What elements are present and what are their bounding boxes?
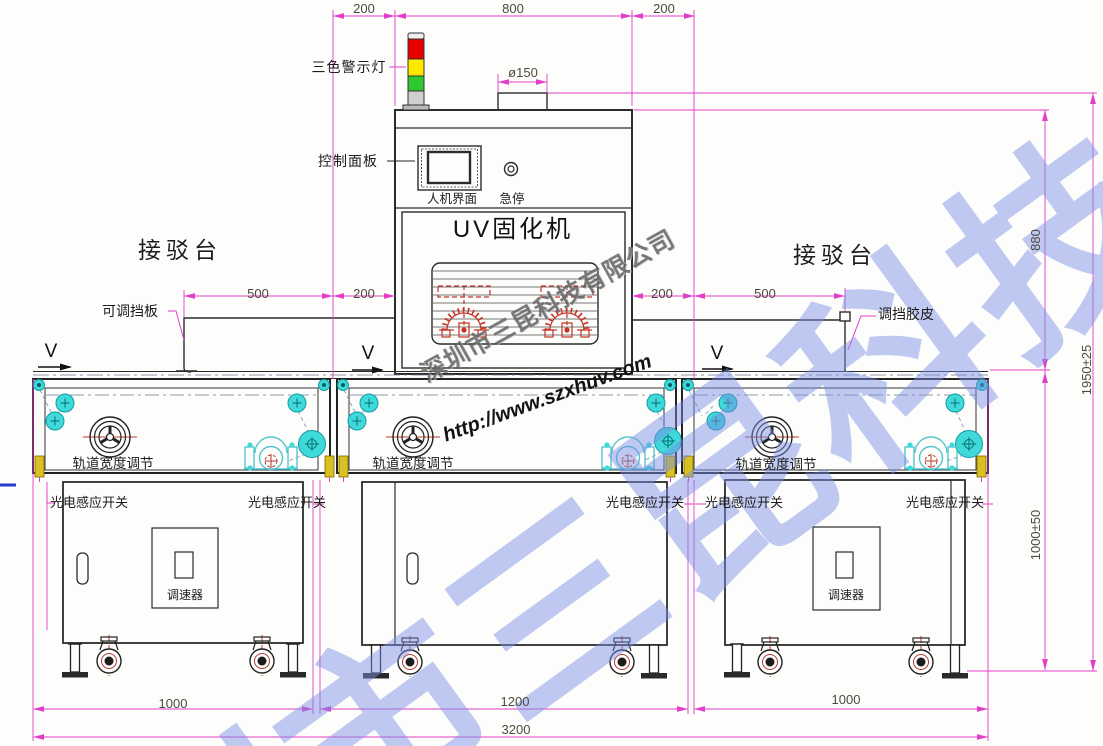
leveling-foot-icon [942, 645, 968, 679]
caster-wheel-icon [758, 636, 782, 677]
leveling-foot-icon [280, 644, 306, 678]
adjustable-baffle-label: 可调挡板 [102, 304, 158, 319]
belt-motor-icon [244, 437, 298, 471]
uv-machine-title: UV固化机 [453, 217, 573, 243]
dim-bottom-3200: 3200 [502, 723, 531, 737]
dim-chimney-diameter: ø150 [508, 66, 538, 80]
estop-label: 急停 [499, 193, 524, 207]
dim-bottom-1000-left: 1000 [159, 697, 188, 711]
dim-bottom-1200: 1200 [501, 695, 530, 709]
hmi-screen-icon [418, 146, 481, 190]
dim-mid-200-right: 200 [651, 287, 673, 301]
dimension-arrows [33, 13, 1096, 740]
leveling-foot-icon [724, 644, 750, 678]
caster-wheel-icon [909, 636, 933, 677]
track-width-label-right: 轨道宽度调节 [736, 458, 817, 473]
photo-switch-label: 光电感应开关 [50, 496, 128, 510]
uv-lamp-icon [438, 286, 490, 337]
dim-top-200-right: 200 [653, 2, 675, 16]
right-baffle [632, 312, 850, 372]
estop-button-icon [505, 163, 518, 176]
leader-lines [47, 67, 993, 504]
leveling-foot-icon [641, 645, 667, 679]
belt-motor-icon [601, 437, 655, 471]
photo-switch-label: 光电感应开关 [606, 496, 684, 510]
caster-wheel-icon [97, 635, 121, 676]
dimension-lines [33, 10, 1097, 741]
dim-mid-500-left: 500 [247, 287, 269, 301]
caster-wheel-icon [398, 636, 422, 677]
dim-mid-200-left: 200 [353, 287, 375, 301]
caster-wheel-icon [250, 635, 274, 676]
baffle-rubber-label: 调挡胶皮 [878, 307, 934, 322]
velocity-label-left: V [45, 342, 58, 363]
warning-light-icon [403, 33, 429, 110]
belt-motor-icon [904, 437, 958, 471]
dim-right-1000-50: 1000±50 [1029, 510, 1043, 561]
track-width-label-middle: 轨道宽度调节 [373, 457, 454, 472]
speed-controller-label-right: 调速器 [828, 589, 864, 602]
conveyor-table-right [682, 379, 988, 482]
leveling-foot-icon [363, 645, 389, 679]
dim-bottom-1000-right: 1000 [832, 693, 861, 707]
velocity-label-right: V [711, 344, 724, 365]
lamp-chamber [432, 263, 598, 344]
photo-switch-label: 光电感应开关 [248, 496, 326, 510]
uv-curing-machine-drawing: 深圳市三昆科技有限公司 深圳市三昆科技有限公司 http://www.szxhu… [0, 0, 1103, 746]
dim-mid-500-right: 500 [754, 287, 776, 301]
track-width-handwheel-icon [83, 417, 137, 457]
photo-switch-label: 光电感应开关 [705, 496, 783, 510]
track-width-handwheel-icon [386, 417, 440, 457]
caster-wheel-icon [610, 636, 634, 677]
dim-right-880: 880 [1029, 229, 1043, 251]
speed-controller-label-left: 调速器 [167, 589, 203, 602]
velocity-label-middle: V [362, 344, 375, 365]
casters-and-feet [62, 635, 968, 679]
warning-light-label: 三色警示灯 [312, 60, 387, 75]
hmi-label: 人机界面 [427, 193, 477, 207]
docking-station-left-label: 接驳台 [138, 238, 222, 263]
track-width-handwheel-icon [745, 417, 799, 457]
dim-top-800: 800 [502, 2, 524, 16]
track-width-label-left: 轨道宽度调节 [73, 457, 154, 472]
dim-right-1950-25: 1950±25 [1080, 345, 1094, 396]
docking-station-right-label: 接驳台 [793, 243, 877, 268]
leveling-foot-icon [62, 644, 88, 678]
dim-top-200-left: 200 [353, 2, 375, 16]
photo-switch-label: 光电感应开关 [906, 496, 984, 510]
drawing-linework [0, 0, 1103, 746]
control-panel-label: 控制面板 [318, 154, 378, 169]
uv-lamp-icon [541, 286, 593, 337]
